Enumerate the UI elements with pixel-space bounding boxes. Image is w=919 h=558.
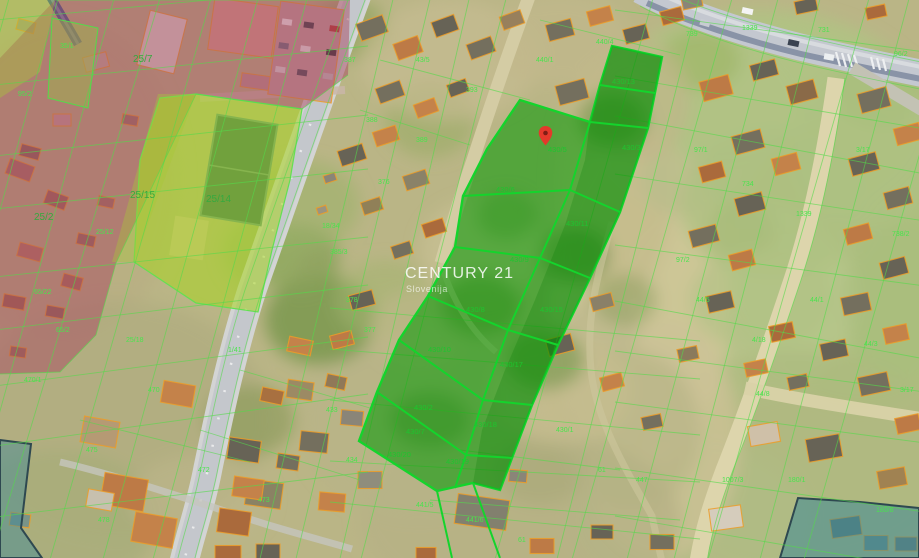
svg-text:95/2: 95/2	[18, 91, 32, 98]
svg-text:388: 388	[366, 117, 378, 124]
svg-text:4/18: 4/18	[752, 337, 766, 344]
svg-text:378: 378	[346, 297, 358, 304]
svg-text:430/2: 430/2	[414, 403, 433, 412]
svg-text:433: 433	[326, 407, 338, 414]
svg-text:430/19: 430/19	[446, 457, 469, 466]
svg-text:430/1: 430/1	[556, 427, 574, 434]
svg-text:430/20: 430/20	[388, 450, 411, 459]
svg-text:97/1: 97/1	[694, 147, 708, 154]
svg-text:180/1: 180/1	[788, 477, 806, 484]
svg-text:61: 61	[518, 537, 526, 544]
svg-text:1339: 1339	[796, 211, 812, 218]
svg-text:44/5: 44/5	[696, 297, 710, 304]
svg-text:430/13: 430/13	[612, 77, 635, 86]
svg-text:430/6: 430/6	[496, 185, 515, 194]
svg-text:25/7: 25/7	[133, 54, 153, 65]
svg-text:430/9: 430/9	[510, 255, 529, 264]
svg-text:440/1: 440/1	[536, 57, 554, 64]
svg-text:CENTURY 21: CENTURY 21	[405, 265, 514, 282]
svg-text:376: 376	[378, 179, 390, 186]
svg-text:430/17: 430/17	[500, 360, 523, 369]
svg-text:61: 61	[598, 467, 606, 474]
svg-text:385/3: 385/3	[330, 249, 348, 256]
svg-text:25/15: 25/15	[130, 190, 155, 201]
svg-text:430/3: 430/3	[622, 143, 641, 152]
svg-text:430/18: 430/18	[474, 420, 497, 429]
svg-text:739: 739	[686, 31, 698, 38]
svg-text:440/4: 440/4	[596, 39, 614, 46]
svg-text:377: 377	[364, 327, 376, 334]
svg-text:1007/3: 1007/3	[722, 477, 744, 484]
svg-text:434: 434	[346, 457, 358, 464]
svg-text:738/2: 738/2	[892, 231, 910, 238]
svg-text:430/10: 430/10	[428, 345, 451, 354]
svg-text:387: 387	[344, 57, 356, 64]
svg-text:96/2: 96/2	[894, 51, 908, 58]
svg-text:44/1: 44/1	[810, 297, 824, 304]
svg-text:734: 734	[742, 181, 754, 188]
svg-text:470/1: 470/1	[24, 377, 42, 384]
svg-text:430/11: 430/11	[566, 219, 588, 228]
svg-text:441/5: 441/5	[416, 502, 434, 509]
svg-text:430/15: 430/15	[540, 305, 563, 314]
svg-text:25/18: 25/18	[126, 337, 144, 344]
svg-text:43/5: 43/5	[416, 57, 430, 64]
svg-text:470: 470	[148, 387, 160, 394]
svg-text:430/5: 430/5	[548, 145, 567, 154]
svg-text:25/2: 25/2	[34, 212, 54, 223]
svg-text:3/17: 3/17	[856, 147, 870, 154]
svg-text:447: 447	[636, 477, 648, 484]
svg-text:389: 389	[416, 137, 428, 144]
svg-text:44/3: 44/3	[864, 341, 878, 348]
svg-text:430/7: 430/7	[406, 427, 425, 436]
svg-text:97/2: 97/2	[676, 257, 690, 264]
svg-text:3/17: 3/17	[900, 387, 914, 394]
svg-text:1339: 1339	[742, 25, 758, 32]
svg-text:44/8: 44/8	[756, 391, 770, 398]
svg-text:35/1: 35/1	[60, 43, 74, 50]
svg-text:180/8: 180/8	[876, 507, 894, 514]
svg-text:472: 472	[198, 467, 210, 474]
svg-text:1/41: 1/41	[228, 347, 242, 354]
svg-text:Slovenija: Slovenija	[406, 284, 448, 294]
svg-text:65/22: 65/22	[34, 289, 52, 296]
svg-text:393: 393	[466, 87, 478, 94]
svg-text:441/6: 441/6	[466, 517, 484, 524]
svg-text:65/2: 65/2	[56, 327, 70, 334]
svg-text:25/14: 25/14	[206, 194, 231, 205]
svg-text:430/8: 430/8	[466, 305, 485, 314]
svg-text:731: 731	[818, 27, 830, 34]
svg-text:473: 473	[258, 497, 270, 504]
svg-text:475: 475	[86, 447, 98, 454]
svg-text:25/12: 25/12	[96, 229, 114, 236]
svg-text:478: 478	[98, 517, 110, 524]
svg-text:18/34: 18/34	[322, 223, 340, 230]
